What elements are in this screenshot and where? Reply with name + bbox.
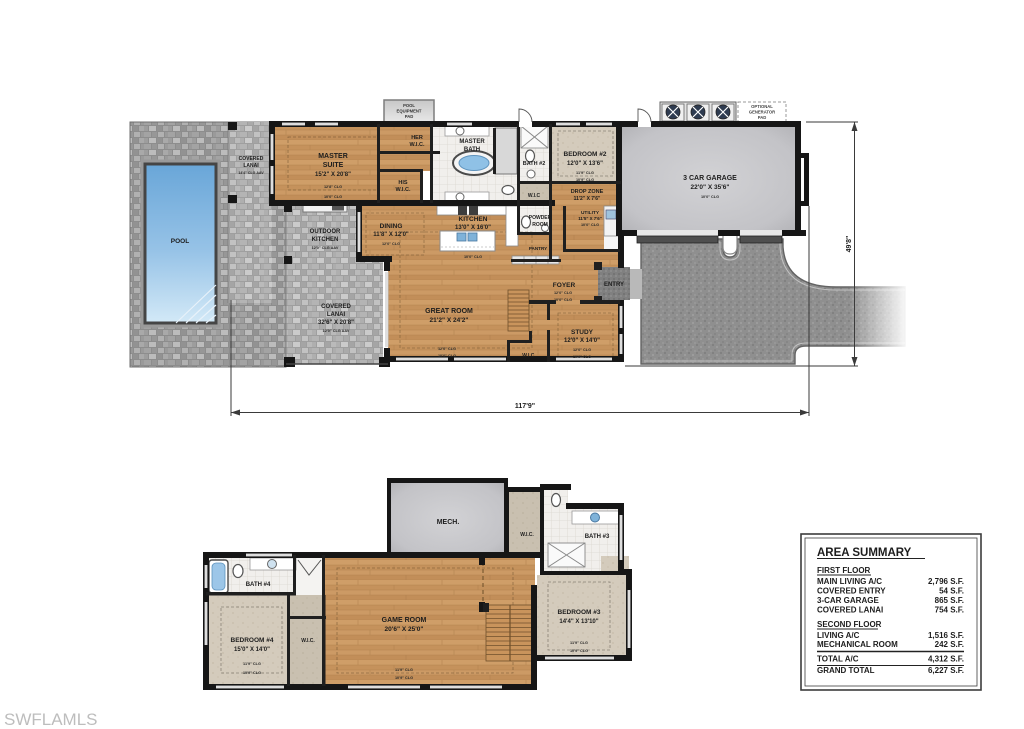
svg-text:KITCHEN: KITCHEN — [459, 216, 488, 223]
svg-text:11'5" X 7'6": 11'5" X 7'6" — [578, 216, 602, 221]
svg-text:GREAT ROOM: GREAT ROOM — [425, 308, 473, 315]
svg-text:HER: HER — [411, 135, 423, 141]
svg-text:BATH: BATH — [464, 147, 480, 153]
svg-text:W.I.C.: W.I.C. — [410, 142, 425, 148]
svg-text:12'0" CLG AAV: 12'0" CLG AAV — [312, 246, 339, 250]
svg-text:3 CAR GARAGE: 3 CAR GARAGE — [683, 175, 737, 182]
svg-text:6,227 S.F.: 6,227 S.F. — [928, 666, 964, 675]
svg-text:10'0" CLG: 10'0" CLG — [438, 354, 456, 358]
svg-text:12'0" CLG: 12'0" CLG — [438, 347, 456, 351]
svg-text:FOYER: FOYER — [553, 282, 576, 289]
svg-text:MAIN LIVING A/C: MAIN LIVING A/C — [817, 577, 882, 586]
svg-text:10'0" CLG: 10'0" CLG — [573, 355, 591, 359]
svg-text:PANTRY: PANTRY — [529, 246, 547, 251]
svg-text:10'9" CLG: 10'9" CLG — [576, 178, 594, 182]
svg-text:W.I.C.: W.I.C. — [396, 187, 411, 193]
svg-text:KITCHEN: KITCHEN — [312, 237, 339, 243]
svg-text:14'4" CLG AAV: 14'4" CLG AAV — [238, 171, 264, 175]
svg-text:15'2" X 20'8": 15'2" X 20'8" — [315, 172, 351, 178]
svg-text:MECH.: MECH. — [437, 519, 460, 526]
svg-text:HIS: HIS — [398, 180, 408, 186]
svg-text:OPTIONAL: OPTIONAL — [751, 104, 773, 109]
svg-text:11'9" CLG: 11'9" CLG — [576, 171, 594, 175]
svg-text:11'9" CLG: 11'9" CLG — [570, 641, 588, 645]
svg-text:54 S.F.: 54 S.F. — [939, 587, 964, 596]
svg-text:AREA SUMMARY: AREA SUMMARY — [817, 547, 912, 559]
svg-text:COVERED: COVERED — [239, 156, 264, 162]
svg-text:242 S.F.: 242 S.F. — [935, 640, 964, 649]
svg-text:BATH #3: BATH #3 — [585, 534, 610, 540]
svg-text:COVERED: COVERED — [321, 304, 351, 310]
svg-text:10'0" CLG: 10'0" CLG — [324, 195, 342, 199]
svg-text:SECOND FLOOR: SECOND FLOOR — [817, 620, 882, 629]
svg-text:11'2" X 7'6": 11'2" X 7'6" — [574, 196, 601, 202]
svg-text:TOTAL A/C: TOTAL A/C — [817, 655, 859, 664]
svg-text:49'8": 49'8" — [846, 236, 853, 253]
svg-text:10'0" CLG: 10'0" CLG — [701, 195, 719, 199]
svg-text:1,516 S.F.: 1,516 S.F. — [928, 631, 964, 640]
svg-text:12'0" CLG: 12'0" CLG — [573, 348, 591, 352]
svg-text:SWFLAMLS: SWFLAMLS — [4, 710, 98, 729]
svg-text:GRAND TOTAL: GRAND TOTAL — [817, 666, 875, 675]
svg-text:COVERED ENTRY: COVERED ENTRY — [817, 587, 886, 596]
svg-text:DINING: DINING — [380, 223, 403, 230]
svg-text:10'9" CLG: 10'9" CLG — [570, 649, 588, 653]
svg-text:BATH #4: BATH #4 — [246, 582, 271, 588]
svg-text:865 S.F.: 865 S.F. — [935, 596, 964, 605]
svg-text:20'6" X 25'0": 20'6" X 25'0" — [385, 626, 424, 633]
svg-text:POWDER: POWDER — [529, 215, 552, 221]
svg-text:LANAI: LANAI — [327, 312, 346, 318]
svg-text:BEDROOM #4: BEDROOM #4 — [231, 637, 274, 644]
svg-text:MASTER: MASTER — [318, 153, 348, 160]
svg-text:FIRST FLOOR: FIRST FLOOR — [817, 566, 871, 575]
svg-text:10'9" CLG: 10'9" CLG — [243, 671, 261, 675]
svg-text:PAD: PAD — [405, 114, 414, 119]
svg-text:PAD: PAD — [758, 115, 767, 120]
svg-text:W.I.C.: W.I.C. — [301, 638, 315, 644]
svg-text:DROP ZONE: DROP ZONE — [571, 189, 604, 195]
svg-text:ENTRY: ENTRY — [604, 282, 624, 288]
svg-text:LIVING A/C: LIVING A/C — [817, 631, 860, 640]
svg-text:11'9" CLG: 11'9" CLG — [243, 662, 261, 666]
svg-text:W.I.C.: W.I.C. — [520, 532, 534, 538]
svg-text:OUTDOOR: OUTDOOR — [310, 229, 341, 235]
svg-text:12'0" CLG: 12'0" CLG — [382, 242, 400, 246]
svg-text:117'9": 117'9" — [515, 403, 535, 410]
svg-text:MASTER: MASTER — [459, 139, 485, 145]
svg-text:EQUIPMENT: EQUIPMENT — [397, 109, 422, 114]
svg-text:11'8" X 12'0": 11'8" X 12'0" — [373, 232, 409, 238]
svg-text:12'0" X 14'0": 12'0" X 14'0" — [564, 338, 600, 344]
svg-text:21'2" X 24'2": 21'2" X 24'2" — [430, 317, 469, 324]
svg-text:10'0" CLG: 10'0" CLG — [554, 298, 572, 302]
svg-text:GAME ROOM: GAME ROOM — [382, 617, 427, 624]
svg-text:GENERATOR: GENERATOR — [749, 110, 775, 115]
svg-text:13'0" X 16'0": 13'0" X 16'0" — [455, 225, 491, 231]
svg-text:W.I.C.: W.I.C. — [522, 353, 536, 359]
svg-text:POOL: POOL — [171, 238, 189, 245]
svg-text:MECHANICAL ROOM: MECHANICAL ROOM — [817, 640, 898, 649]
svg-text:BEDROOM #3: BEDROOM #3 — [558, 609, 601, 616]
svg-text:12'8" CLG: 12'8" CLG — [324, 185, 342, 189]
svg-text:3-CAR GARAGE: 3-CAR GARAGE — [817, 596, 879, 605]
svg-text:11'9" CLG: 11'9" CLG — [395, 668, 413, 672]
svg-text:2,796 S.F.: 2,796 S.F. — [928, 577, 964, 586]
svg-text:22'0" X 35'6": 22'0" X 35'6" — [691, 184, 730, 191]
svg-text:12'0" X 13'6": 12'0" X 13'6" — [567, 161, 603, 167]
svg-text:12'0" CLG: 12'0" CLG — [554, 291, 572, 295]
svg-text:10'0" CLG: 10'0" CLG — [581, 223, 599, 227]
svg-text:BEDROOM #2: BEDROOM #2 — [564, 151, 607, 158]
svg-text:754 S.F.: 754 S.F. — [935, 606, 964, 615]
svg-text:15'0" X 14'0": 15'0" X 14'0" — [234, 647, 270, 653]
svg-text:BATH #2: BATH #2 — [523, 161, 546, 167]
svg-text:10'0" CLG: 10'0" CLG — [464, 255, 482, 259]
svg-text:LANAI: LANAI — [243, 163, 259, 169]
svg-text:14'4" X 13'10": 14'4" X 13'10" — [559, 619, 598, 625]
svg-text:POOL: POOL — [403, 103, 415, 108]
svg-text:ROOM: ROOM — [532, 222, 548, 228]
svg-text:W.I.C: W.I.C — [528, 193, 541, 199]
svg-text:COVERED LANAI: COVERED LANAI — [817, 606, 883, 615]
svg-text:SUITE: SUITE — [323, 162, 344, 169]
svg-text:12'0" CLG AAV: 12'0" CLG AAV — [323, 329, 350, 333]
svg-text:32'6" X 20'8": 32'6" X 20'8" — [318, 320, 354, 326]
svg-text:4,312 S.F.: 4,312 S.F. — [928, 655, 964, 664]
svg-text:10'9" CLG: 10'9" CLG — [395, 676, 413, 680]
svg-text:STUDY: STUDY — [571, 329, 594, 336]
